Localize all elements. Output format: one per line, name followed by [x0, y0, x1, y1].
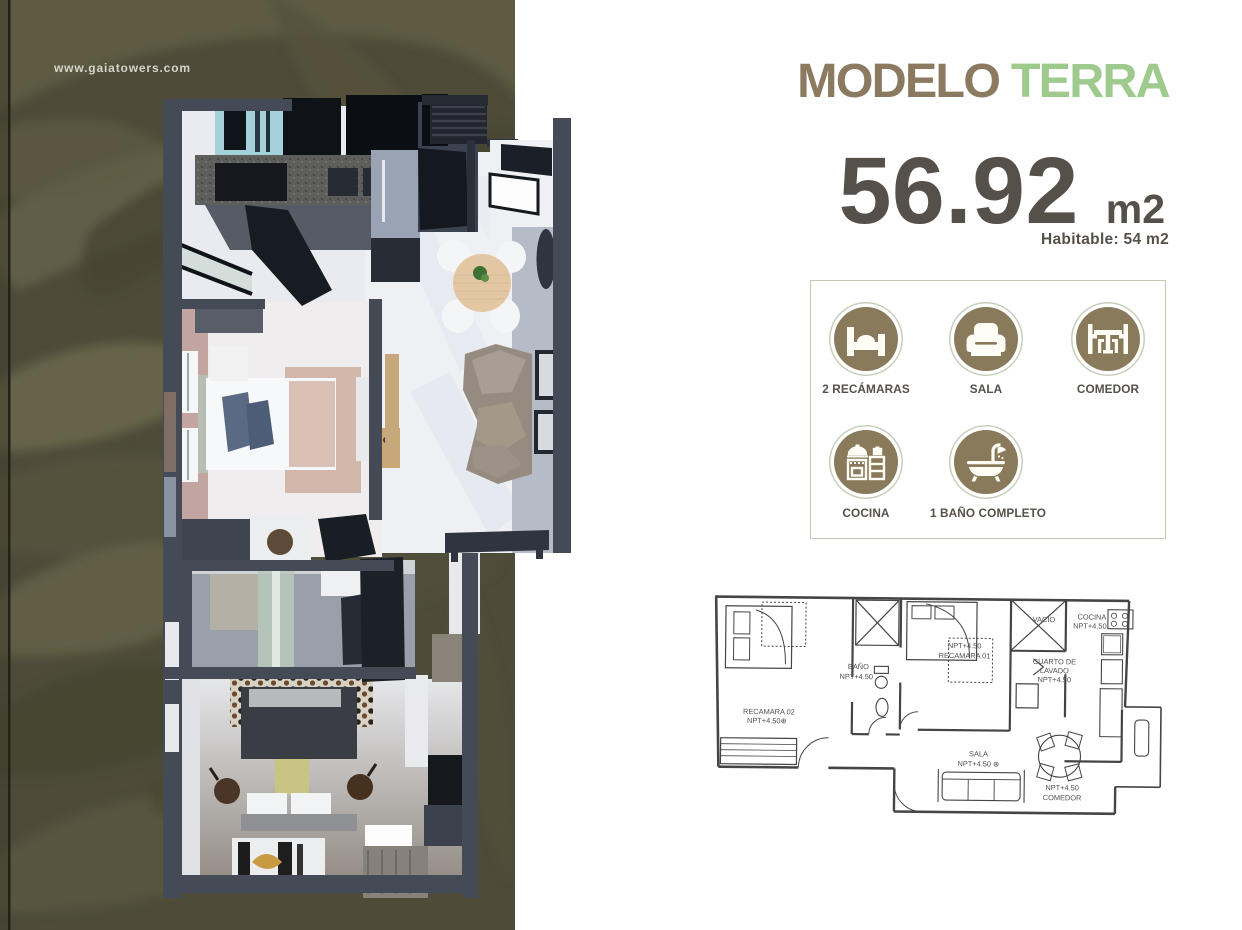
svg-text:BAÑO: BAÑO [848, 662, 869, 671]
svg-text:RECAMARA 01: RECAMARA 01 [939, 651, 991, 661]
svg-text:NPT+4.50 ⊕: NPT+4.50 ⊕ [958, 759, 1000, 768]
svg-text:LAVADO: LAVADO [1040, 666, 1069, 675]
svg-text:NPT+4.50: NPT+4.50 [1045, 783, 1079, 792]
svg-text:VACIO: VACIO [1033, 615, 1056, 624]
svg-text:NPT+4.50: NPT+4.50 [1073, 621, 1107, 630]
svg-text:COCINA: COCINA [1078, 612, 1107, 621]
svg-text:NPT+4.50: NPT+4.50 [840, 672, 874, 681]
svg-text:NPT+4.50: NPT+4.50 [948, 641, 982, 650]
svg-text:COMEDOR: COMEDOR [1043, 793, 1082, 802]
svg-text:CUARTO DE: CUARTO DE [1033, 657, 1076, 666]
svg-text:NPT+4.50: NPT+4.50 [1038, 675, 1072, 684]
svg-text:NPT+4.50⊕: NPT+4.50⊕ [747, 716, 787, 725]
svg-text:SALA: SALA [969, 749, 988, 758]
